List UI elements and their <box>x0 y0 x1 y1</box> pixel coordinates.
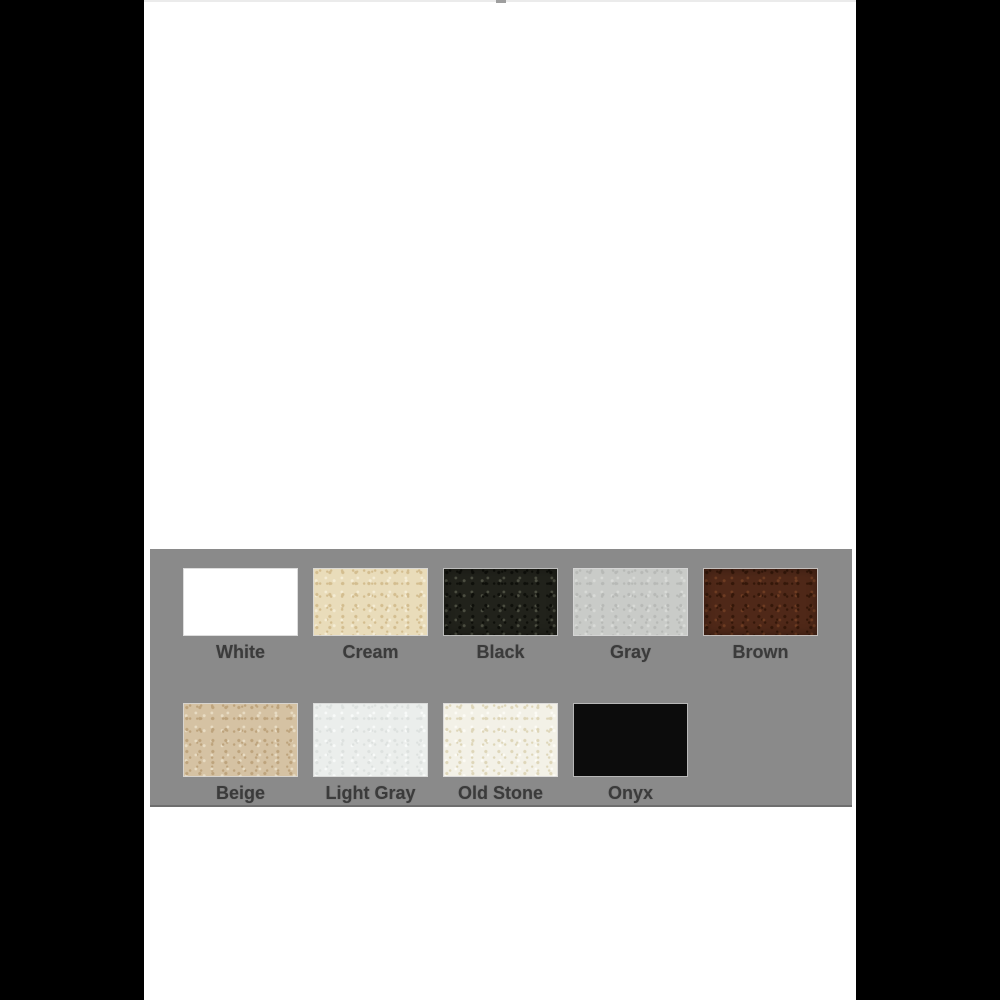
color-swatch-cell: Onyx <box>573 703 688 804</box>
color-swatch-label: White <box>183 642 298 663</box>
color-swatch-old-stone[interactable] <box>443 703 558 777</box>
color-swatch-label: Black <box>443 642 558 663</box>
color-swatch-cell: Light Gray <box>313 703 428 804</box>
right-black-bar <box>856 0 1000 1000</box>
color-swatch-cell: Cream <box>313 568 428 663</box>
color-swatch-label: Beige <box>183 783 298 804</box>
color-swatch-cream[interactable] <box>313 568 428 636</box>
color-swatch-black[interactable] <box>443 568 558 636</box>
color-swatch-label: Gray <box>573 642 688 663</box>
color-swatch-cell: Black <box>443 568 558 663</box>
color-swatch-onyx[interactable] <box>573 703 688 777</box>
color-swatch-white[interactable] <box>183 568 298 636</box>
color-swatch-cell: White <box>183 568 298 663</box>
color-swatch-cell: Beige <box>183 703 298 804</box>
color-swatch-label: Old Stone <box>443 783 558 804</box>
color-swatch-label: Onyx <box>573 783 688 804</box>
color-swatch-light-gray[interactable] <box>313 703 428 777</box>
color-swatch-cell: Gray <box>573 568 688 663</box>
color-swatch-gray[interactable] <box>573 568 688 636</box>
color-swatch-label: Cream <box>313 642 428 663</box>
color-swatch-beige[interactable] <box>183 703 298 777</box>
color-swatch-cell: Old Stone <box>443 703 558 804</box>
top-tick-mark <box>496 0 506 3</box>
color-swatch-cell: Brown <box>703 568 818 663</box>
page: White Cream Black Gray Brown Beige Light… <box>0 0 1000 1000</box>
left-black-bar <box>0 0 144 1000</box>
color-swatch-label: Brown <box>703 642 818 663</box>
color-swatch-brown[interactable] <box>703 568 818 636</box>
content-area: White Cream Black Gray Brown Beige Light… <box>144 0 856 1000</box>
color-swatch-label: Light Gray <box>313 783 428 804</box>
color-options-panel: White Cream Black Gray Brown Beige Light… <box>150 549 852 807</box>
